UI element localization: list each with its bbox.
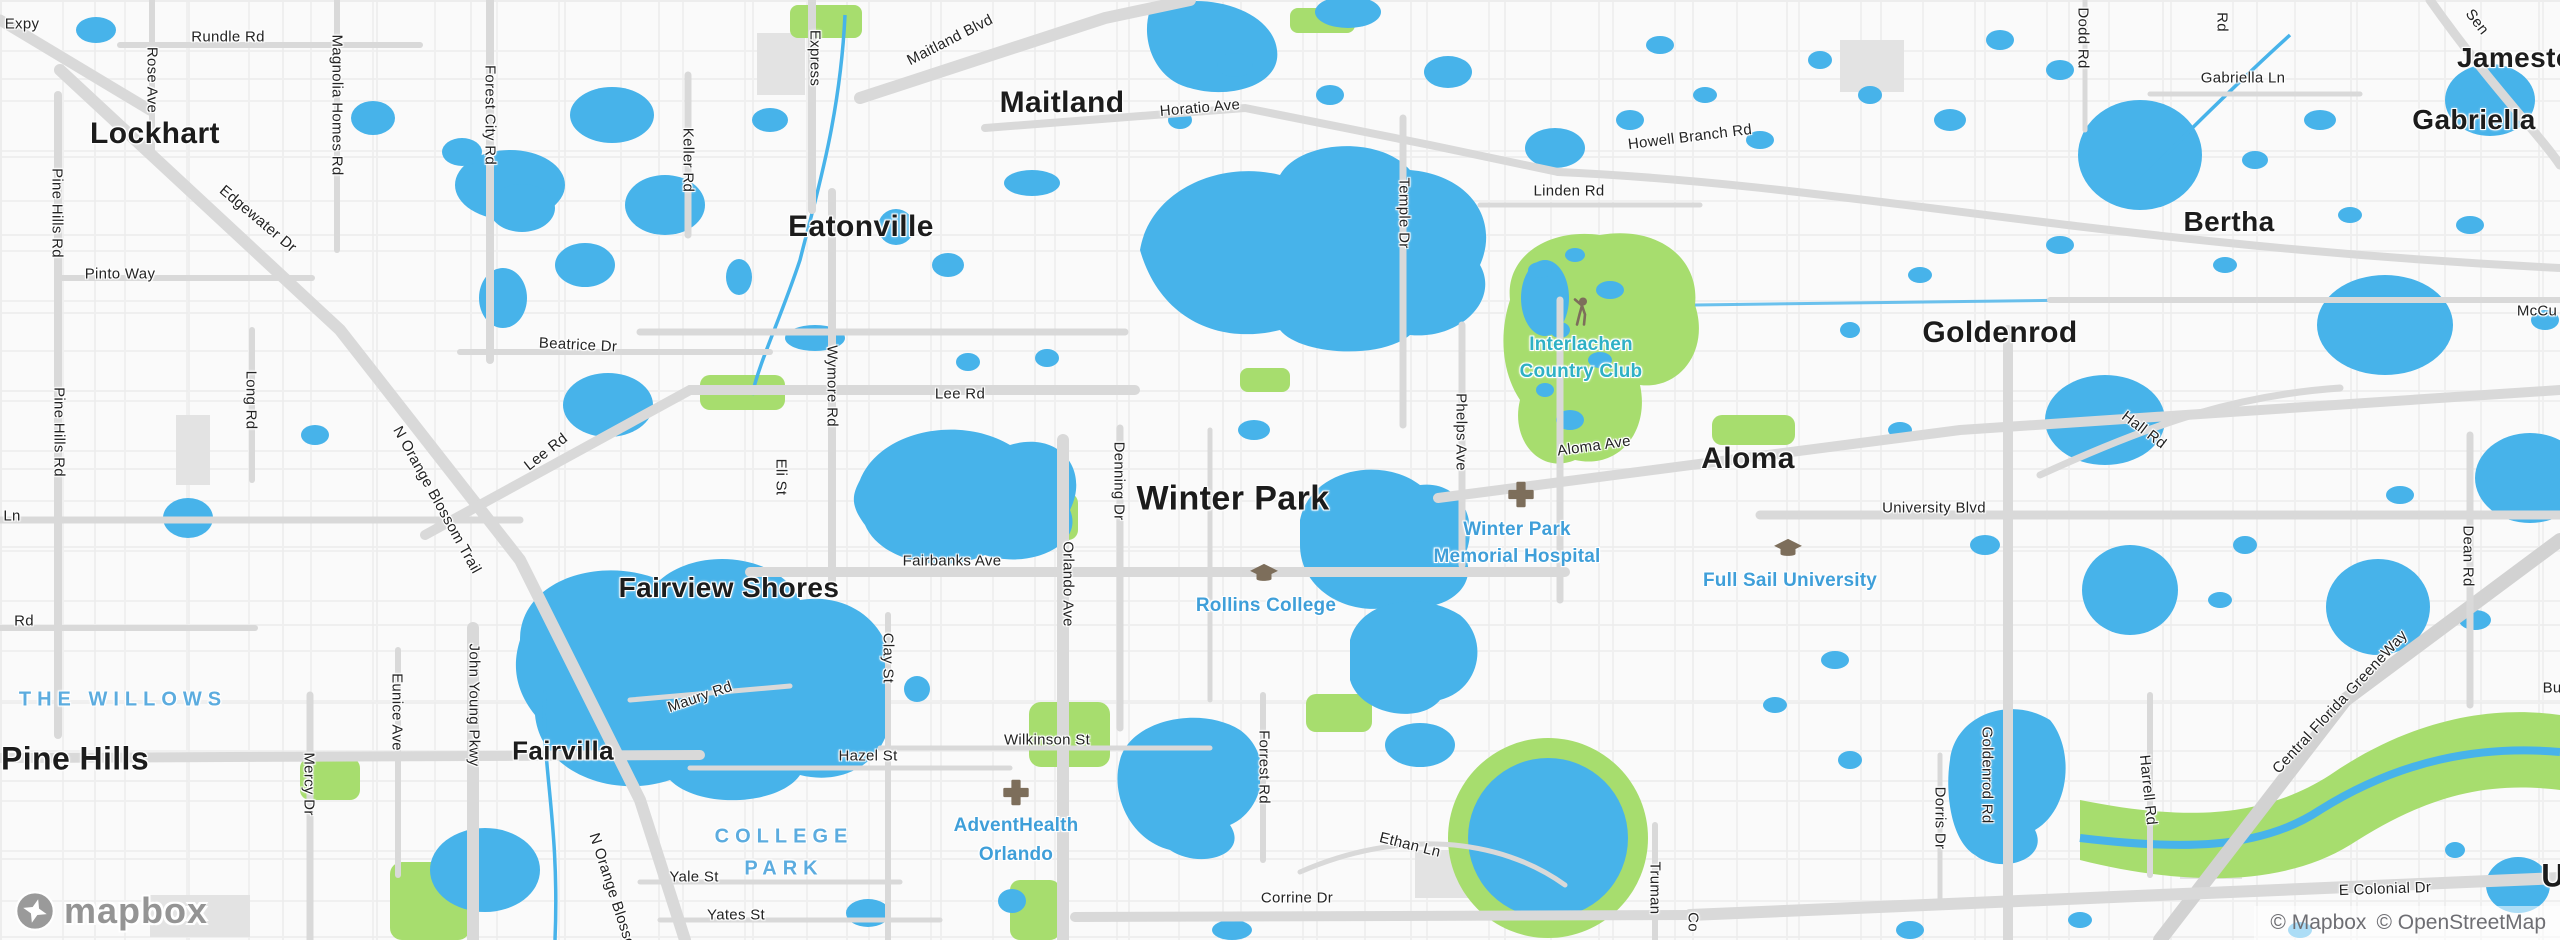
road-label-yale-st: Yale St: [669, 869, 718, 886]
road-label-expy: Expy: [5, 16, 40, 33]
neighborhood-label-the-willows: THE WILLOWS: [19, 689, 227, 712]
map-base-layer: [0, 0, 2560, 940]
road-label-rundle-rd: Rundle Rd: [191, 29, 265, 46]
place-label-eatonville: Eatonville: [788, 210, 934, 244]
place-label-goldenrod: Goldenrod: [1922, 316, 2077, 350]
road-label-john-young-pkwy: John Young Pkwy: [466, 644, 483, 767]
mapbox-wordmark: mapbox: [64, 890, 208, 932]
poi-label-full-sail-university: Full Sail University: [1703, 570, 1877, 592]
attribution-osm-link[interactable]: © OpenStreetMap: [2376, 911, 2546, 935]
map-canvas[interactable]: Lockhart Maitland Eatonville Winter Park…: [0, 0, 2560, 940]
road-label-eunice-ave: Eunice Ave: [389, 673, 406, 751]
poi-label-adventhealth-line1: AdventHealth: [954, 815, 1079, 837]
place-label-lockhart: Lockhart: [90, 117, 220, 151]
road-label-wymore-rd: Wymore Rd: [824, 345, 841, 427]
road-label-yates-st: Yates St: [707, 907, 765, 924]
road-label-ln-partial: Ln: [3, 508, 20, 525]
attribution-bar: © Mapbox © OpenStreetMap: [2254, 906, 2560, 940]
road-label-rose-ave: Rose Ave: [144, 47, 161, 113]
road-label-linden-rd: Linden Rd: [1533, 183, 1604, 200]
poi-label-interlachen-line1: Interlachen: [1529, 334, 1633, 356]
road-label-phelps-ave: Phelps Ave: [1453, 393, 1470, 471]
neighborhood-label-college: COLLEGE: [715, 826, 854, 849]
road-label-pine-hills-rd-2: Pine Hills Rd: [51, 387, 68, 477]
road-label-clay-st: Clay St: [880, 633, 897, 683]
college-icon: [1773, 538, 1803, 565]
poi-label-wp-memorial-line1: Winter Park: [1463, 519, 1571, 541]
road-label-truman-partial: Truman: [1647, 862, 1664, 915]
road-label-fairbanks-ave: Fairbanks Ave: [903, 553, 1002, 570]
road-label-mercy-dr: Mercy Dr: [301, 752, 318, 815]
poi-label-wp-memorial-line2: Memorial Hospital: [1433, 546, 1600, 568]
place-label-bertha: Bertha: [2183, 206, 2274, 238]
road-label-temple-dr: Temple Dr: [1396, 177, 1413, 248]
place-label-jamestown: Jamestown: [2457, 42, 2560, 74]
hospital-cross-icon: [1001, 778, 1031, 813]
hospital-cross-icon: [1506, 480, 1536, 515]
place-label-gabriella: Gabriella: [2412, 104, 2535, 136]
road-label-pinto-way: Pinto Way: [85, 266, 156, 283]
road-label-e-colonial-dr: E Colonial Dr: [2339, 879, 2432, 899]
place-label-pine-hills: Pine Hills: [1, 741, 149, 778]
road-label-rd-partial-2: Rd: [14, 613, 34, 630]
road-label-wilkinson-st: Wilkinson St: [1004, 732, 1090, 749]
road-label-long-rd: Long Rd: [243, 371, 260, 430]
road-label-forest-city-rd: Forest City Rd: [482, 65, 499, 165]
place-label-winter-park: Winter Park: [1136, 480, 1329, 519]
road-label-dodd-rd: Dodd Rd: [2075, 7, 2092, 68]
road-label-dean-rd: Dean Rd: [2460, 525, 2477, 586]
road-label-hazel-st: Hazel St: [838, 748, 897, 765]
road-label-eli-st: Eli St: [773, 459, 790, 496]
road-label-keller-rd: Keller Rd: [680, 128, 697, 192]
poi-label-interlachen-line2: Country Club: [1520, 361, 1643, 383]
road-label-mccu-partial: McCu: [2517, 303, 2557, 320]
golf-icon: [1570, 296, 1594, 333]
place-label-u-clipped: U: [2541, 858, 2560, 895]
road-label-express: Express: [807, 30, 824, 86]
road-label-denning-dr: Denning Dr: [1111, 442, 1128, 521]
road-label-rd-partial-1: Rd: [2214, 12, 2231, 32]
road-label-orlando-ave: Orlando Ave: [1060, 541, 1077, 627]
mapbox-pin-icon: [14, 890, 56, 932]
road-label-university-blvd: University Blvd: [1882, 500, 1986, 517]
road-label-lee-rd-1: Lee Rd: [935, 386, 985, 403]
place-label-aloma: Aloma: [1701, 442, 1795, 476]
mapbox-logo[interactable]: mapbox: [14, 890, 208, 932]
road-label-magnolia-homes-rd: Magnolia Homes Rd: [329, 35, 346, 176]
place-label-fairview-shores: Fairview Shores: [619, 572, 840, 604]
road-label-goldenrod-rd: Goldenrod Rd: [1979, 727, 1996, 824]
road-label-buc-partial: Buc: [2543, 680, 2560, 697]
poi-label-rollins-college: Rollins College: [1196, 595, 1336, 617]
road-label-co-partial: Co: [1685, 912, 1702, 932]
neighborhood-label-park: PARK: [744, 858, 823, 881]
attribution-mapbox-link[interactable]: © Mapbox: [2270, 911, 2366, 935]
road-label-dorris-dr: Dorris Dr: [1932, 787, 1949, 850]
road-label-gabriella-ln: Gabriella Ln: [2201, 70, 2285, 87]
college-icon: [1249, 563, 1279, 590]
place-label-maitland: Maitland: [1000, 86, 1125, 120]
road-label-pine-hills-rd-1: Pine Hills Rd: [49, 168, 66, 258]
road-label-forrest-rd: Forrest Rd: [1256, 730, 1273, 804]
road-label-corrine-dr: Corrine Dr: [1261, 890, 1333, 907]
poi-label-adventhealth-line2: Orlando: [979, 844, 1053, 866]
place-label-fairvilla: Fairvilla: [512, 736, 614, 767]
